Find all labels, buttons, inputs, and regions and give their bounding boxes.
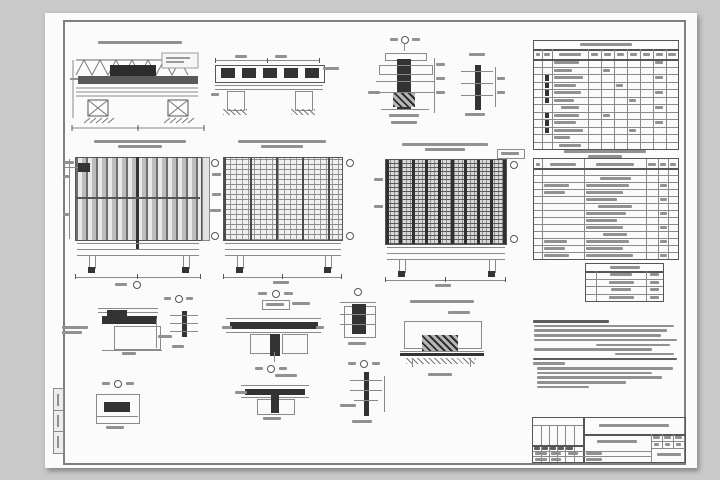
- mini-summary-table: [585, 263, 664, 302]
- table-line: [542, 159, 543, 259]
- text-smudge: [656, 53, 664, 56]
- table-line: [534, 217, 678, 218]
- text-smudge: [603, 69, 610, 72]
- table-line: [584, 159, 585, 259]
- sheet-name-smudge: [597, 440, 637, 443]
- table-line: [534, 127, 678, 128]
- text-smudge: [554, 129, 583, 132]
- table-line: [534, 112, 678, 113]
- title-block: [532, 417, 686, 463]
- detail-node-o: [340, 360, 395, 428]
- text-smudge: [561, 106, 579, 109]
- table-line: [534, 82, 678, 83]
- text-smudge: [544, 240, 567, 243]
- text-smudge: [550, 163, 575, 166]
- detail-node-i: [158, 295, 205, 352]
- position-mark: [545, 98, 549, 104]
- view-slab-section: [211, 53, 331, 125]
- text-smudge: [629, 99, 636, 102]
- table-line: [534, 203, 678, 204]
- text-smudge: [402, 143, 488, 146]
- detail-node-j: [222, 288, 325, 362]
- truss-elevation-drawing: [70, 48, 210, 133]
- view-truss-elevation: [70, 48, 210, 133]
- mesh-grid: [223, 157, 343, 241]
- detail-node-m: [92, 380, 142, 432]
- text-smudge: [600, 177, 631, 180]
- text-smudge: [554, 114, 579, 117]
- text-smudge: [616, 84, 623, 87]
- table-line: [534, 252, 678, 253]
- text-smudge: [586, 247, 623, 250]
- text-smudge: [629, 129, 636, 132]
- table-line: [534, 89, 678, 90]
- text-smudge: [609, 296, 634, 299]
- text-smudge: [650, 296, 659, 299]
- left-stamp-strip: [53, 388, 64, 454]
- text-smudge: [655, 76, 663, 79]
- text-smudge: [610, 266, 640, 269]
- doc-designation-smudge: [599, 424, 669, 427]
- table-line: [534, 210, 678, 211]
- note-line: [537, 381, 625, 384]
- table-line: [534, 189, 678, 190]
- text-smudge: [580, 43, 632, 46]
- table-line: [534, 182, 678, 183]
- text-smudge: [655, 61, 663, 64]
- text-smudge: [586, 191, 623, 194]
- text-smudge: [588, 155, 622, 158]
- table-line: [646, 159, 647, 259]
- text-smudge: [586, 226, 623, 229]
- text-smudge: [655, 91, 663, 94]
- table-line: [534, 245, 678, 246]
- note-line: [533, 358, 677, 361]
- table-line: [534, 142, 678, 143]
- note-line: [534, 348, 652, 351]
- note-line: [596, 344, 670, 347]
- view-joint-section: [368, 36, 453, 131]
- text-smudge: [660, 198, 667, 201]
- text-smudge: [655, 121, 663, 124]
- text-smudge: [660, 212, 667, 215]
- text-smudge: [660, 240, 667, 243]
- table-line: [534, 175, 678, 176]
- position-mark: [545, 83, 549, 89]
- text-smudge: [554, 99, 574, 102]
- table-line: [534, 231, 678, 232]
- text-smudge: [238, 140, 326, 143]
- text-smudge: [559, 144, 581, 147]
- note-line: [537, 376, 662, 379]
- position-mark: [545, 90, 549, 96]
- position-mark: [545, 113, 549, 119]
- section-mark: [78, 163, 90, 172]
- text-smudge: [610, 273, 633, 276]
- text-smudge: [598, 205, 632, 208]
- table-line: [586, 279, 663, 280]
- detail-node-n: [235, 365, 315, 425]
- text-smudge: [655, 106, 663, 109]
- note-line: [533, 362, 565, 365]
- note-line: [537, 386, 588, 389]
- table-line: [534, 67, 678, 68]
- text-smudge: [591, 53, 599, 56]
- text-smudge: [586, 240, 629, 243]
- text-smudge: [544, 53, 550, 56]
- text-smudge: [544, 191, 565, 194]
- text-smudge: [586, 198, 617, 201]
- note-line: [537, 367, 672, 370]
- specification-table: [533, 40, 679, 150]
- position-mark: [545, 120, 549, 126]
- text-smudge: [650, 288, 659, 291]
- text-smudge: [650, 281, 659, 284]
- text-smudge: [554, 91, 581, 94]
- text-smudge: [603, 114, 610, 117]
- text-smudge: [559, 53, 581, 56]
- text-smudge: [617, 53, 625, 56]
- note-line: [534, 329, 666, 332]
- text-smudge: [660, 184, 667, 187]
- table-line: [534, 97, 678, 98]
- note-line: [537, 372, 652, 375]
- table-line: [658, 159, 659, 259]
- table-line: [534, 49, 678, 51]
- table-line: [586, 286, 663, 287]
- text-smudge: [118, 145, 162, 148]
- note-line: [534, 325, 674, 328]
- text-smudge: [660, 163, 666, 166]
- text-smudge: [650, 273, 659, 276]
- table-line: [534, 168, 678, 170]
- text-smudge: [564, 150, 646, 153]
- text-smudge: [603, 233, 628, 236]
- table-line: [534, 224, 678, 225]
- dense-grid: [385, 159, 507, 245]
- note-line: [533, 320, 609, 323]
- text-smudge: [630, 53, 638, 56]
- text-smudge: [660, 254, 667, 257]
- text-smudge: [536, 163, 541, 166]
- text-smudge: [648, 163, 655, 166]
- text-smudge: [554, 69, 572, 72]
- table-line: [668, 159, 669, 259]
- scanned-drawing-background: { "document": { "kind": "scanned structu…: [0, 0, 720, 480]
- text-smudge: [668, 53, 675, 56]
- text-smudge: [425, 148, 465, 151]
- table-line: [534, 196, 678, 197]
- text-smudge: [586, 254, 633, 257]
- detail-node-h: [62, 300, 162, 355]
- note-line: [534, 339, 677, 342]
- table-line: [586, 294, 663, 295]
- text-smudge: [536, 53, 541, 56]
- position-mark: [545, 75, 549, 81]
- steel-consumption-table: [533, 158, 679, 260]
- text-smudge: [469, 53, 485, 56]
- text-smudge: [586, 219, 617, 222]
- table-line: [534, 104, 678, 105]
- drawing-sheet: [45, 13, 697, 468]
- text-smudge: [586, 212, 626, 215]
- text-smudge: [261, 145, 303, 148]
- text-smudge: [660, 226, 667, 229]
- table-line: [534, 74, 678, 75]
- detail-node-k: [332, 288, 385, 358]
- text-smudge: [554, 84, 576, 87]
- table-line: [534, 238, 678, 239]
- text-smudge: [544, 254, 569, 257]
- text-smudge: [604, 53, 612, 56]
- table-line: [534, 134, 678, 135]
- organization-smudge: [657, 453, 681, 456]
- table-line: [534, 119, 678, 120]
- text-smudge: [670, 163, 676, 166]
- text-smudge: [544, 184, 569, 187]
- text-smudge: [554, 61, 579, 64]
- text-smudge: [596, 163, 633, 166]
- text-smudge: [554, 76, 583, 79]
- text-smudge: [94, 140, 186, 143]
- text-smudge: [554, 121, 576, 124]
- detail-node-l: [398, 305, 486, 385]
- text-smudge: [410, 300, 474, 303]
- text-smudge: [586, 184, 629, 187]
- text-smudge: [611, 288, 631, 291]
- text-smudge: [98, 41, 182, 44]
- view-edge-section: [453, 57, 505, 119]
- text-smudge: [643, 53, 651, 56]
- text-smudge: [544, 247, 565, 250]
- text-smudge: [609, 281, 634, 284]
- text-smudge: [554, 136, 570, 139]
- position-mark: [545, 128, 549, 134]
- note-line: [534, 334, 660, 337]
